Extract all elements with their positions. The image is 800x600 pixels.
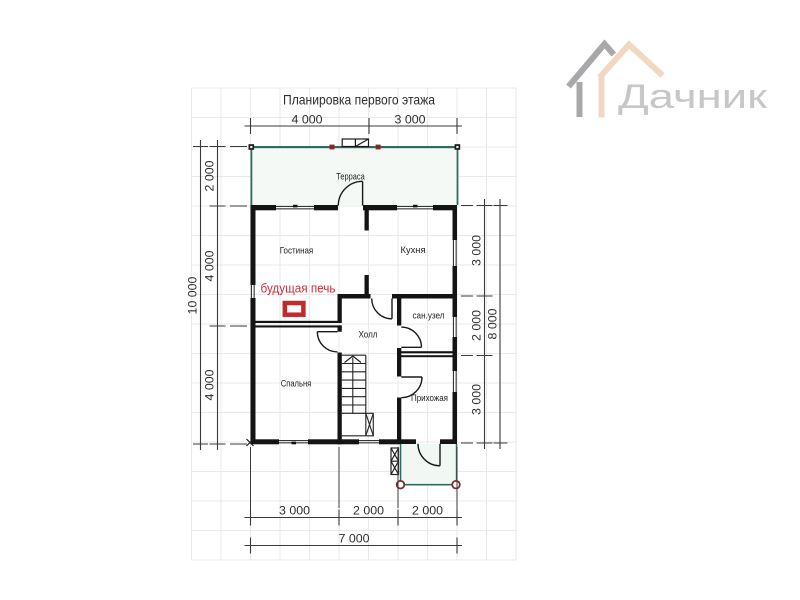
svg-text:4 000: 4 000: [203, 369, 217, 400]
svg-text:3 000: 3 000: [470, 384, 484, 415]
svg-text:10 000: 10 000: [186, 276, 200, 314]
svg-text:Прихожая: Прихожая: [411, 393, 448, 403]
svg-text:2 000: 2 000: [470, 310, 484, 341]
svg-text:2 000: 2 000: [412, 504, 443, 518]
svg-text:4 000: 4 000: [291, 113, 322, 127]
svg-text:Гостиная: Гостиная: [280, 246, 314, 256]
svg-text:будущая печь: будущая печь: [261, 281, 336, 296]
svg-text:Терраса: Терраса: [336, 172, 365, 182]
svg-text:Кухня: Кухня: [401, 245, 426, 255]
svg-text:Спальня: Спальня: [281, 379, 312, 389]
svg-text:Дачник: Дачник: [618, 78, 769, 116]
svg-text:3 000: 3 000: [394, 113, 425, 127]
svg-text:сан.узел: сан.узел: [413, 311, 445, 321]
svg-text:2 000: 2 000: [203, 160, 217, 191]
svg-text:7 000: 7 000: [338, 532, 369, 546]
svg-text:Холл: Холл: [359, 330, 378, 340]
svg-text:2 000: 2 000: [353, 504, 384, 518]
svg-text:3 000: 3 000: [470, 235, 484, 266]
svg-text:Планировка первого этажа: Планировка первого этажа: [283, 92, 435, 108]
svg-text:3 000: 3 000: [279, 504, 310, 518]
svg-text:4 000: 4 000: [203, 250, 217, 281]
svg-text:8 000: 8 000: [486, 308, 500, 339]
